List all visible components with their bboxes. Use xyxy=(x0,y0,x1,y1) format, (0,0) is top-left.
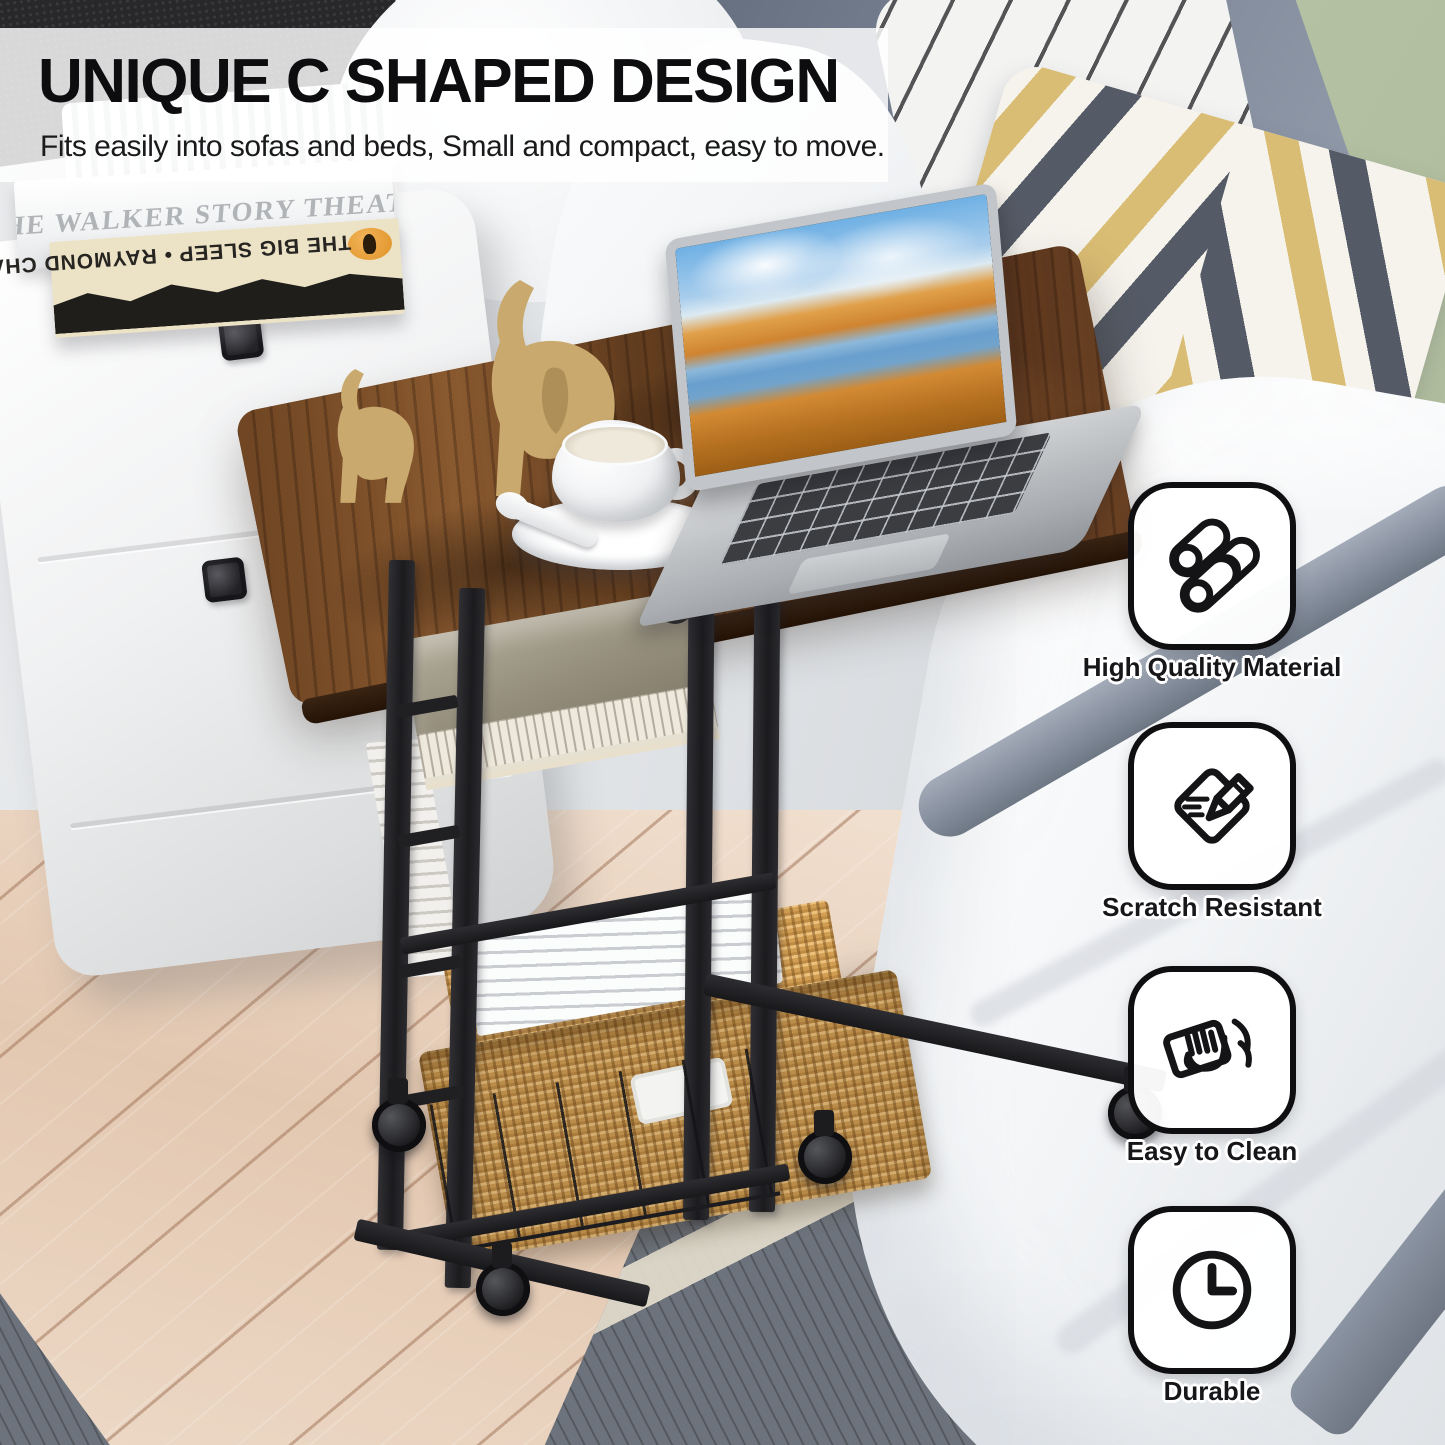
feature-label: High Quality Material xyxy=(1042,652,1382,683)
penguin-logo-icon xyxy=(347,226,393,261)
feature-box-clean xyxy=(1128,966,1296,1134)
feature-label: Durable xyxy=(1042,1376,1382,1407)
feature-label: Scratch Resistant xyxy=(1042,892,1382,923)
laptop xyxy=(616,173,1114,614)
pipes-icon xyxy=(1158,512,1266,620)
product-image: THE WALKER STORY THEATE THE BIG SLEEP • … xyxy=(0,0,1445,1445)
feature-box-material xyxy=(1128,482,1296,650)
wiping-hand-icon xyxy=(1158,996,1266,1104)
feature-label: Easy to Clean xyxy=(1042,1136,1382,1167)
feature-box-scratch xyxy=(1128,722,1296,890)
drawer-knob xyxy=(201,556,248,603)
headline-banner: UNIQUE C SHAPED DESIGN Fits easily into … xyxy=(0,28,888,182)
caster-wheel xyxy=(798,1130,852,1184)
feature-box-durable xyxy=(1128,1206,1296,1374)
scratch-pen-icon xyxy=(1158,752,1266,860)
clock-icon xyxy=(1158,1236,1266,1344)
caster-wheel xyxy=(372,1098,426,1152)
autumn-wallpaper xyxy=(675,194,1006,477)
page-title: UNIQUE C SHAPED DESIGN xyxy=(38,46,839,117)
caster-wheel xyxy=(476,1262,530,1316)
page-subtitle: Fits easily into sofas and beds, Small a… xyxy=(40,130,885,164)
